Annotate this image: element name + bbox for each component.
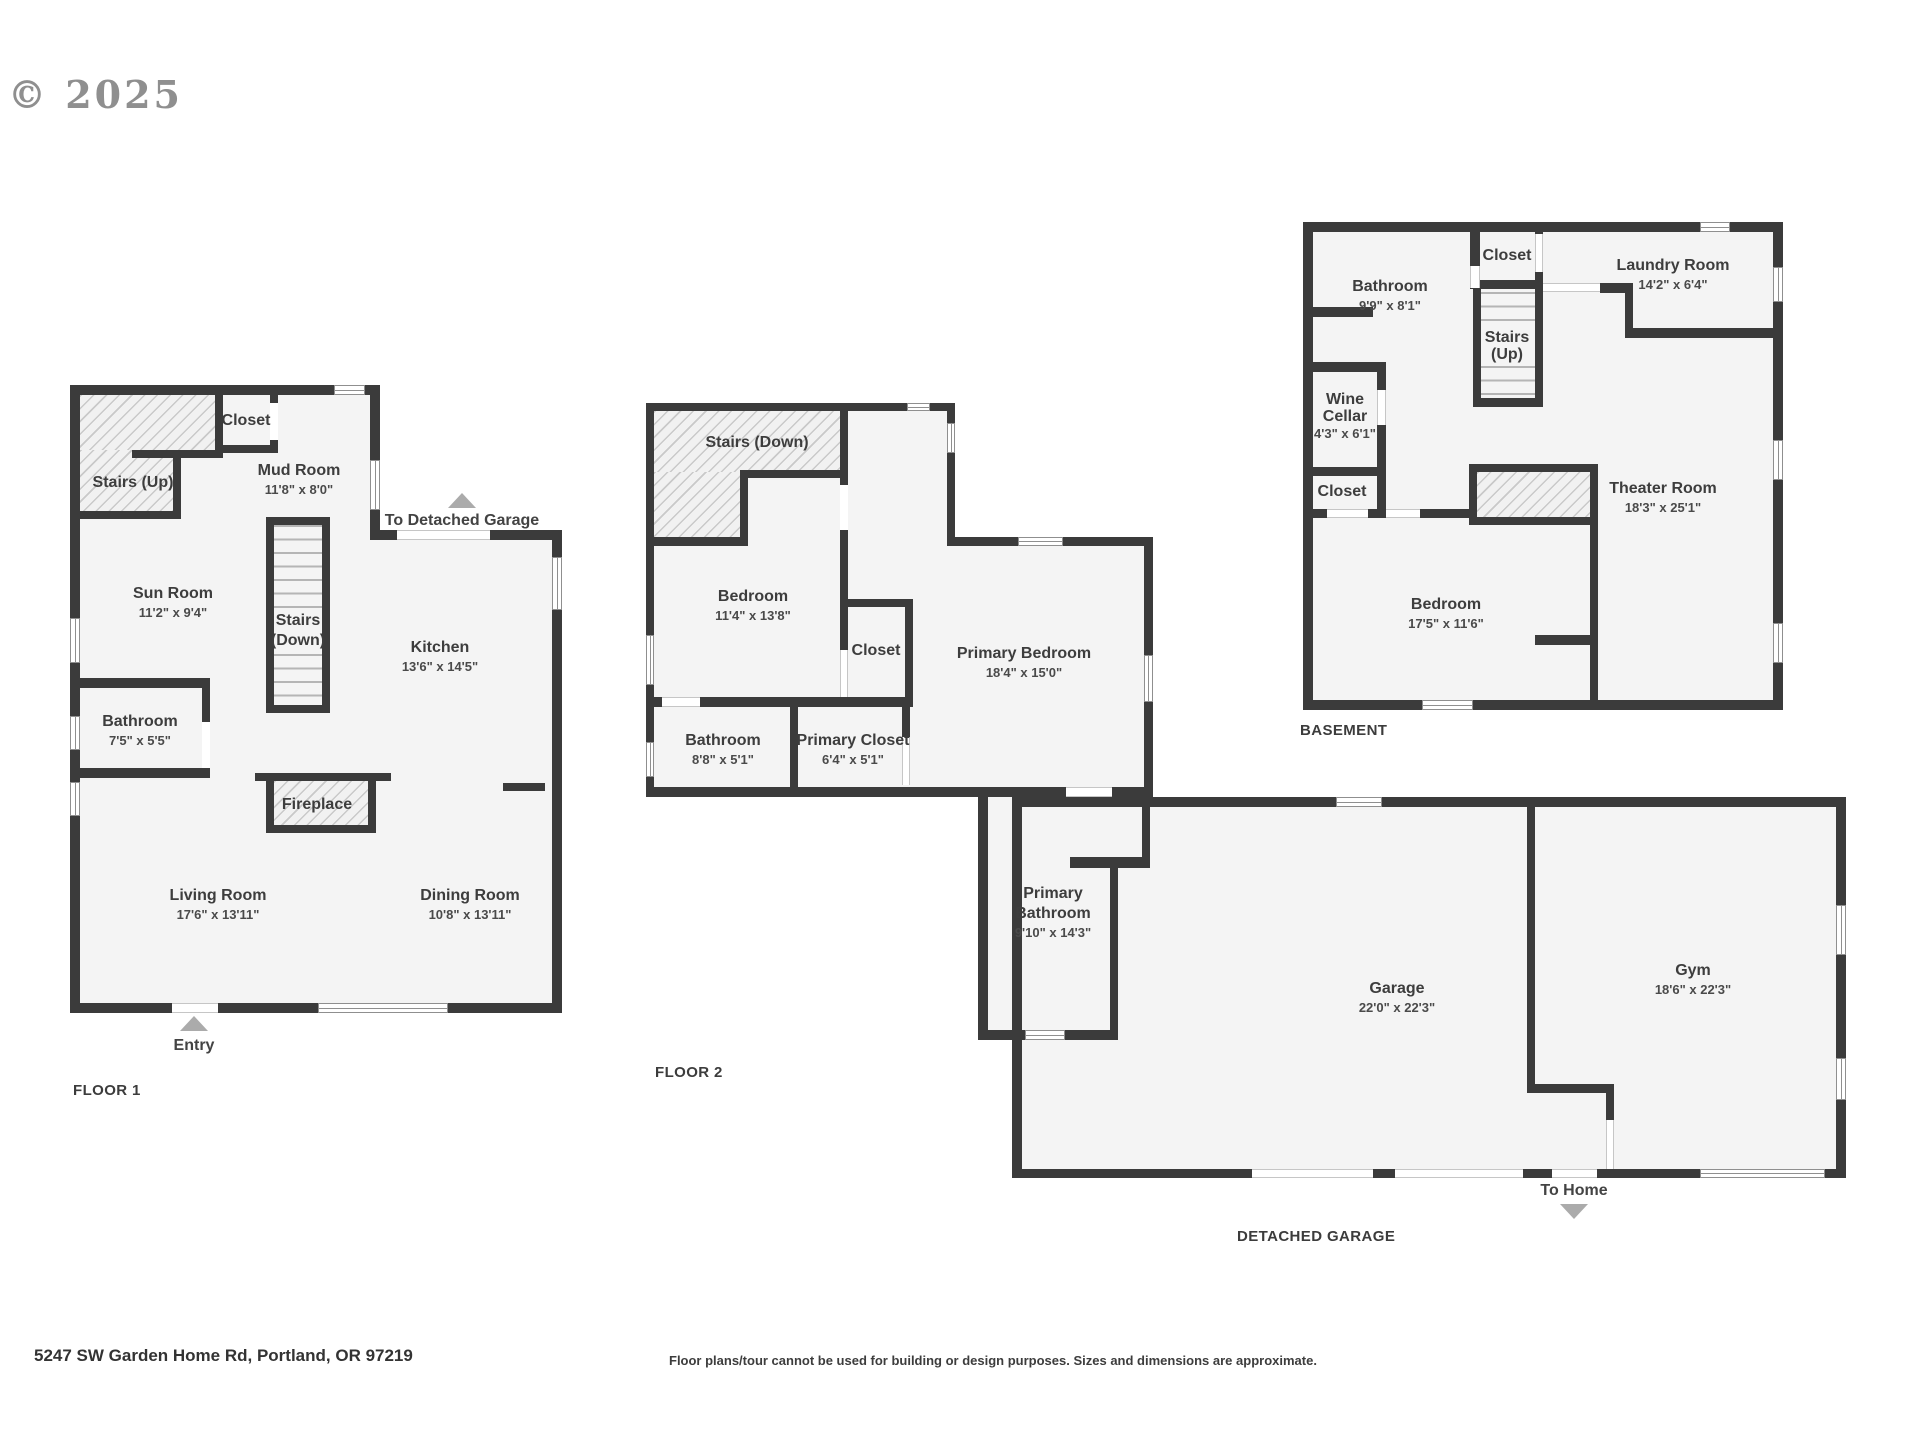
door-opening bbox=[1377, 390, 1386, 425]
door-opening bbox=[1543, 283, 1600, 292]
room-dims: 8'8" x 5'1" bbox=[685, 751, 761, 768]
room-name: Kitchen bbox=[402, 638, 478, 658]
door-opening bbox=[840, 485, 848, 530]
window bbox=[552, 557, 562, 610]
room-name: Primary Closet bbox=[797, 731, 910, 751]
wall bbox=[1303, 222, 1313, 710]
room-label-laundry-room: Laundry Room 14'2" x 6'4" bbox=[1617, 256, 1730, 293]
room-name: Garage bbox=[1359, 979, 1435, 999]
room-dims: 11'2" x 9'4" bbox=[133, 604, 213, 621]
room-dims: 9'10" x 14'3" bbox=[1015, 924, 1091, 941]
room-name: Closet bbox=[1483, 246, 1532, 266]
entry-annotation: Entry bbox=[174, 1037, 215, 1055]
room-label-stairs-down-f2: Stairs (Down) bbox=[705, 433, 808, 453]
stairs-hatch bbox=[80, 395, 215, 450]
room-dims: 18'6" x 22'3" bbox=[1655, 981, 1731, 998]
window bbox=[1144, 655, 1153, 702]
window bbox=[1773, 440, 1783, 480]
room-dims: 9'9" x 8'1" bbox=[1352, 297, 1428, 314]
door-opening bbox=[662, 697, 700, 707]
window bbox=[334, 385, 365, 395]
room-dims: 13'6" x 14'5" bbox=[402, 658, 478, 675]
window bbox=[1836, 905, 1846, 955]
wall bbox=[70, 511, 181, 519]
room-name: Stairs (Up) bbox=[93, 473, 174, 493]
floor2-title: FLOOR 2 bbox=[655, 1064, 723, 1081]
room-name: Closet bbox=[1318, 482, 1367, 502]
wall bbox=[173, 458, 181, 519]
room-label-theater-room: Theater Room 18'3" x 25'1" bbox=[1609, 479, 1717, 516]
room-name: Bathroom bbox=[102, 712, 178, 732]
wall bbox=[70, 678, 210, 688]
wall bbox=[255, 773, 391, 781]
room-dims: 14'2" x 6'4" bbox=[1617, 276, 1730, 293]
detached-garage-title: DETACHED GARAGE bbox=[1237, 1228, 1395, 1245]
stair-treads bbox=[1481, 366, 1535, 398]
room-dims: 6'4" x 5'1" bbox=[797, 751, 910, 768]
room-name: Stairs (Down) bbox=[705, 433, 808, 453]
window bbox=[1422, 700, 1473, 710]
room-label-closet-f2: Closet bbox=[852, 641, 901, 661]
room-label-sun-room: Sun Room 11'2" x 9'4" bbox=[133, 584, 213, 621]
wall bbox=[1012, 797, 1846, 807]
room-name: Primary Bedroom bbox=[957, 644, 1091, 664]
floor1-title: FLOOR 1 bbox=[73, 1082, 141, 1099]
window bbox=[1773, 623, 1783, 663]
room-name: Wine bbox=[1314, 391, 1376, 408]
wall bbox=[1373, 1169, 1395, 1178]
window bbox=[318, 1003, 448, 1013]
wall bbox=[1825, 1169, 1846, 1178]
window bbox=[907, 403, 930, 411]
wall bbox=[266, 705, 330, 713]
wall bbox=[840, 599, 913, 607]
wall bbox=[740, 470, 848, 478]
wall bbox=[70, 385, 80, 1013]
room-name: Bedroom bbox=[1408, 595, 1484, 615]
stair-treads bbox=[274, 525, 322, 612]
window bbox=[947, 423, 955, 453]
room-name: Dining Room bbox=[420, 886, 520, 906]
wall bbox=[1303, 362, 1386, 372]
wall bbox=[1473, 289, 1481, 407]
room-name: Theater Room bbox=[1609, 479, 1717, 499]
room-label-wine-cellar: Wine Cellar 4'3" x 6'1" bbox=[1314, 391, 1376, 442]
wall bbox=[1473, 398, 1543, 407]
room-name: Gym bbox=[1655, 961, 1731, 981]
door-opening bbox=[1606, 1120, 1614, 1169]
to-garage-arrow bbox=[448, 493, 476, 508]
room-name: Cellar bbox=[1314, 408, 1376, 425]
room-label-primary-closet: Primary Closet 6'4" x 5'1" bbox=[797, 731, 910, 768]
window bbox=[1025, 1030, 1065, 1040]
room-label-fireplace: Fireplace bbox=[282, 795, 352, 815]
room-name: Sun Room bbox=[133, 584, 213, 604]
room-dims: 17'6" x 13'11" bbox=[170, 906, 267, 923]
wall bbox=[905, 599, 913, 707]
room-name: Bathroom bbox=[1015, 904, 1091, 924]
room-dims: 17'5" x 11'6" bbox=[1408, 615, 1484, 632]
door-opening bbox=[397, 530, 490, 540]
wall bbox=[1303, 700, 1783, 710]
wall bbox=[646, 403, 654, 797]
window bbox=[1336, 797, 1382, 807]
room-name: Bathroom bbox=[685, 731, 761, 751]
wall bbox=[1303, 467, 1386, 476]
room-dims: 11'8" x 8'0" bbox=[258, 481, 341, 498]
room-label-bathroom-f1: Bathroom 7'5" x 5'5" bbox=[102, 712, 178, 749]
basement-title: BASEMENT bbox=[1300, 722, 1387, 739]
wall bbox=[503, 783, 545, 791]
garage-door-opening bbox=[1252, 1169, 1373, 1178]
room-label-primary-bathroom: Primary Bathroom 9'10" x 14'3" bbox=[1015, 884, 1091, 941]
garage-door-opening bbox=[1395, 1169, 1523, 1178]
room-dims: 10'8" x 13'11" bbox=[420, 906, 520, 923]
disclaimer-text: Floor plans/tour cannot be used for buil… bbox=[669, 1353, 1317, 1368]
room-label-stairs-up: Stairs (Up) bbox=[93, 473, 174, 493]
wall bbox=[1535, 635, 1598, 645]
property-address: 5247 SW Garden Home Rd, Portland, OR 972… bbox=[34, 1346, 413, 1366]
wall bbox=[1470, 280, 1543, 289]
wall bbox=[978, 797, 988, 1040]
door-opening bbox=[270, 403, 278, 440]
room-label-stairs-up-basement: Stairs (Up) bbox=[1485, 329, 1529, 363]
wall bbox=[370, 530, 397, 540]
wall bbox=[1597, 1169, 1700, 1178]
room-name: Closet bbox=[222, 411, 271, 431]
door-opening bbox=[1066, 787, 1112, 797]
room-label-bathroom-f2: Bathroom 8'8" x 5'1" bbox=[685, 731, 761, 768]
room-name: (Up) bbox=[1485, 346, 1529, 363]
room-dims: 11'4" x 13'8" bbox=[715, 607, 791, 624]
window bbox=[1018, 537, 1063, 546]
door-opening bbox=[1552, 1169, 1597, 1178]
copyright-watermark: © 2025 bbox=[8, 72, 183, 117]
room-label-gym: Gym 18'6" x 22'3" bbox=[1655, 961, 1731, 998]
room-name: Mud Room bbox=[258, 461, 341, 481]
door-opening bbox=[840, 650, 848, 697]
room-name: Living Room bbox=[170, 886, 267, 906]
room-label-closet: Closet bbox=[222, 411, 271, 431]
window bbox=[370, 460, 380, 510]
wall bbox=[1606, 1093, 1614, 1120]
room-label-dining-room: Dining Room 10'8" x 13'11" bbox=[420, 886, 520, 923]
door-opening bbox=[1327, 509, 1368, 518]
window bbox=[1836, 1058, 1846, 1100]
room-label-stairs-down: Stairs (Down) bbox=[271, 611, 325, 651]
window bbox=[70, 716, 80, 750]
to-home-arrow bbox=[1560, 1204, 1588, 1219]
room-dims: 18'3" x 25'1" bbox=[1609, 499, 1717, 516]
door-opening bbox=[1470, 266, 1480, 288]
room-name: Primary bbox=[1015, 884, 1091, 904]
wall bbox=[1625, 328, 1783, 338]
to-home-annotation: To Home bbox=[1540, 1182, 1607, 1200]
wall bbox=[202, 678, 210, 722]
floor-plans-canvas: Stairs (Up) Closet Mud Room 11'8" x 8'0"… bbox=[0, 0, 1920, 1440]
wall bbox=[740, 478, 748, 538]
window bbox=[70, 782, 80, 816]
window bbox=[1700, 222, 1730, 232]
room-name: Bedroom bbox=[715, 587, 791, 607]
room-dims: 7'5" x 5'5" bbox=[102, 732, 178, 749]
room-name: Closet bbox=[852, 641, 901, 661]
wall bbox=[840, 411, 848, 472]
wall bbox=[70, 1003, 562, 1013]
wall bbox=[132, 450, 223, 458]
room-label-primary-bedroom: Primary Bedroom 18'4" x 15'0" bbox=[957, 644, 1091, 681]
room-label-bedroom-basement: Bedroom 17'5" x 11'6" bbox=[1408, 595, 1484, 632]
wall bbox=[1377, 362, 1386, 518]
stairs-hatch bbox=[654, 472, 740, 537]
room-label-kitchen: Kitchen 13'6" x 14'5" bbox=[402, 638, 478, 675]
room-dims: 18'4" x 15'0" bbox=[957, 664, 1091, 681]
to-garage-annotation: To Detached Garage bbox=[385, 512, 539, 530]
window bbox=[1773, 267, 1783, 302]
room-label-closet-basement-top: Closet bbox=[1483, 246, 1532, 266]
stair-treads bbox=[274, 654, 322, 705]
wall bbox=[266, 517, 330, 525]
window bbox=[1700, 1169, 1825, 1178]
wall bbox=[215, 445, 278, 453]
fireplace-hatch bbox=[1469, 464, 1598, 525]
room-label-garage: Garage 22'0" x 22'3" bbox=[1359, 979, 1435, 1016]
wall bbox=[646, 537, 748, 546]
door-opening bbox=[172, 1003, 218, 1013]
wall bbox=[1527, 1084, 1614, 1093]
room-label-mud-room: Mud Room 11'8" x 8'0" bbox=[258, 461, 341, 498]
room-dims: 4'3" x 6'1" bbox=[1314, 425, 1376, 442]
door-opening bbox=[202, 722, 210, 768]
stair-treads bbox=[1481, 292, 1535, 328]
room-label-living-room: Living Room 17'6" x 13'11" bbox=[170, 886, 267, 923]
wall bbox=[70, 768, 210, 778]
wall bbox=[1110, 857, 1118, 1040]
door-opening bbox=[1386, 509, 1420, 518]
window bbox=[646, 742, 654, 777]
room-name: Fireplace bbox=[282, 795, 352, 815]
wall bbox=[1012, 797, 1022, 1178]
room-name: Bathroom bbox=[1352, 277, 1428, 297]
wall bbox=[1590, 525, 1598, 700]
room-name: Stairs bbox=[1485, 329, 1529, 346]
room-label-bathroom-basement: Bathroom 9'9" x 8'1" bbox=[1352, 277, 1428, 314]
window bbox=[70, 618, 80, 663]
room-label-bedroom-f2: Bedroom 11'4" x 13'8" bbox=[715, 587, 791, 624]
wall bbox=[1527, 807, 1535, 1086]
wall bbox=[1523, 1169, 1552, 1178]
room-name: Stairs bbox=[271, 611, 325, 631]
room-name: Laundry Room bbox=[1617, 256, 1730, 276]
wall bbox=[1012, 1169, 1252, 1178]
door-opening bbox=[1535, 234, 1543, 272]
wall bbox=[1836, 797, 1846, 1178]
entry-arrow bbox=[180, 1016, 208, 1031]
room-dims: 22'0" x 22'3" bbox=[1359, 999, 1435, 1016]
room-label-closet-basement-left: Closet bbox=[1318, 482, 1367, 502]
room-name: (Down) bbox=[271, 631, 325, 651]
window bbox=[646, 635, 654, 685]
